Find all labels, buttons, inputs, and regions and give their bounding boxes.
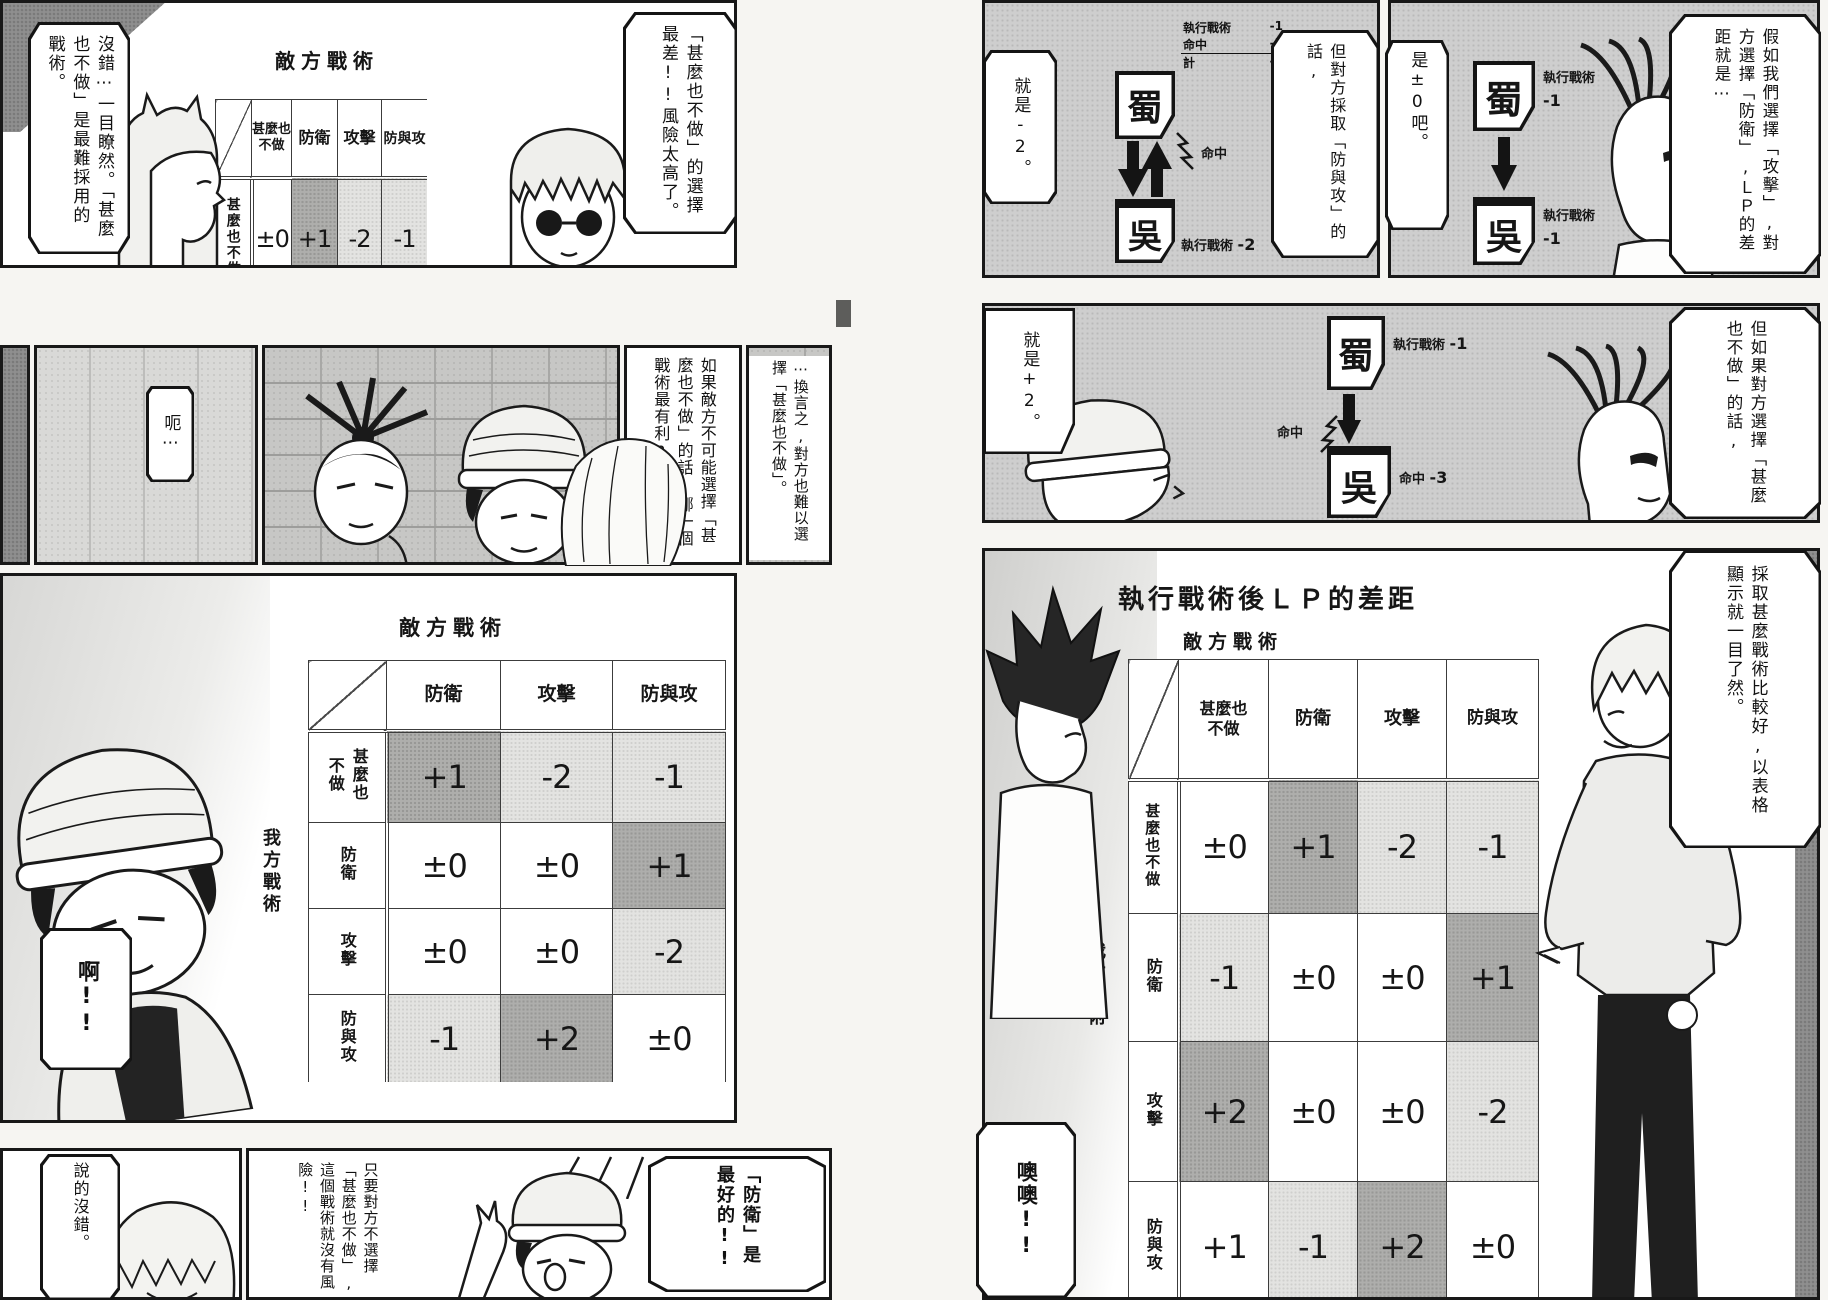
speech-text: 呃⋯ [158, 414, 183, 455]
row-header: 防與攻 [309, 995, 387, 1083]
shu-card: 蜀 [1115, 71, 1175, 139]
page-gutter-mark [836, 300, 851, 327]
character-ponytail-man [271, 376, 453, 565]
table-cell: +1 [1179, 1182, 1269, 1300]
panel-title: 執行戰術後ＬＰ的差距 [1118, 579, 1418, 616]
col-header: 攻擊 [1358, 660, 1447, 780]
speech-text: 就是-2。 [1008, 77, 1033, 178]
col-header: 防與攻 [382, 100, 428, 178]
table-cell: -1 [1269, 1182, 1358, 1300]
shu-card: 蜀 [1327, 316, 1385, 390]
speech-bubble: 假如我們選擇「攻擊」,對方選擇「防衛」,ＬＰ的差距就是⋯ [1669, 14, 1821, 274]
exec-annotation: 執行戰術 -2 [1181, 235, 1255, 254]
table-cell: ±0 [1179, 780, 1269, 914]
speech-text: 「防衛」是最好的!! [711, 1165, 763, 1283]
col-header: 防與攻 [613, 661, 726, 731]
col-header: 防與攻 [1447, 660, 1539, 780]
character-sunglasses-man [501, 119, 635, 268]
row-header: 甚麼也不做 [309, 731, 387, 823]
payoff-table-small: 甚麼也不做 防衛 攻擊 防與攻 甚麼也不做 ±0 +1 -2 -1 [215, 99, 427, 265]
table-cell: ±0 [1358, 914, 1447, 1042]
table-title: 敵方戰術 [1183, 627, 1283, 654]
speech-text: 「甚麼也不做」的選擇最差!!風險太高了。 [655, 25, 704, 221]
exec-annotation: 執行戰術 -1 [1393, 334, 1467, 353]
speech-bubble: 就是-2。 [983, 50, 1057, 204]
col-header: 防衛 [387, 661, 501, 731]
table-cell: -2 [613, 909, 726, 995]
exchange-arrows-icon [1117, 141, 1173, 197]
speech-text: 噢噢!! [1011, 1161, 1041, 1259]
hit-label: 命中 [1277, 422, 1303, 441]
table-cell: +1 [1447, 914, 1539, 1042]
table-cell: -1 [1447, 780, 1539, 914]
speech-bubble: 噢噢!! [976, 1122, 1076, 1298]
speech-bubble: 「甚麼也不做」的選擇最差!!風險太高了。 [623, 12, 737, 234]
panel-4a [0, 1148, 242, 1300]
character-beanie-man-pointing [417, 1165, 657, 1300]
col-header: 攻擊 [501, 661, 613, 731]
table-cell: ±0 [252, 178, 292, 266]
table-cell: -2 [338, 178, 382, 266]
table-cell: +1 [1269, 780, 1358, 914]
speech-bubble: 就是+2。 [983, 308, 1075, 454]
col-header: 甚麼也不做 [1179, 660, 1269, 780]
table-cell: -1 [387, 995, 501, 1083]
speech-bubble: 但如果對方選擇「甚麼也不做」的話, [1669, 307, 1821, 519]
speech-text: 假如我們選擇「攻擊」,對方選擇「防衛」,ＬＰ的差距就是⋯ [1709, 28, 1781, 260]
col-header: 防衛 [1269, 660, 1358, 780]
table-cell: ±0 [501, 909, 613, 995]
payoff-table-right: 甚麼也不做 防衛 攻擊 防與攻 甚麼也不做 ±0 +1 -2 -1 防衛 -1 … [1128, 659, 1539, 1300]
col-header: 攻擊 [338, 100, 382, 178]
speech-text: 就是+2。 [1017, 331, 1042, 432]
col-header: 防衛 [292, 100, 338, 178]
col-header: 甚麼也不做 [252, 100, 292, 178]
character-kid-looking-up [983, 579, 1125, 1019]
character-blonde-girl [548, 424, 700, 566]
speech-text: 但如果對方選擇「甚麼也不做」的話, [1721, 320, 1769, 506]
speech-text: 但對方採取「防與攻」的話, [1302, 43, 1348, 245]
payoff-table-left: 防衛 攻擊 防與攻 甚麼也不做 +1 -2 -1 防衛 ±0 ±0 +1 [308, 660, 726, 1082]
table-cell: +2 [1179, 1042, 1269, 1182]
row-header: 防衛 [309, 823, 387, 909]
table-cell: ±0 [387, 909, 501, 995]
speech-bubble: 「防衛」是最好的!! [648, 1156, 826, 1292]
table-corner [309, 661, 387, 731]
speech-text: 啊!! [70, 960, 102, 1038]
speech-text: ⋯換言之,對方也難以選擇「甚麼也不做」。 [767, 360, 811, 556]
table-title: 敵方戰術 [399, 612, 507, 642]
table-cell: +1 [387, 731, 501, 823]
speech-bubble: 是±0吧。 [1385, 40, 1449, 230]
table-cell: -2 [1447, 1042, 1539, 1182]
panel-2a [0, 345, 30, 565]
speech-bubble: 說的沒錯。 [40, 1154, 120, 1300]
hit-annotation: 命中 -3 [1399, 468, 1447, 487]
speech-text: 採取甚麼戰術比較好,以表格顯示就一目了然。 [1720, 565, 1769, 833]
speech-text: 只要對方不選擇「甚麼也不做」,這個戰術就沒有風險!! [294, 1162, 381, 1296]
table-cell: +2 [1358, 1182, 1447, 1300]
table-corner [1129, 660, 1179, 780]
table-cell: ±0 [501, 823, 613, 909]
hit-label: 命中 [1201, 143, 1227, 162]
table-cell: -1 [1179, 914, 1269, 1042]
wu-card: 吳 [1473, 197, 1535, 265]
row-header: 防與攻 [1129, 1182, 1179, 1300]
speech-bubble: 啊!! [40, 928, 132, 1070]
speech-bubble: 呃⋯ [146, 386, 194, 482]
table-cell: +1 [292, 178, 338, 266]
table-cell: ±0 [1447, 1182, 1539, 1300]
row-header: 攻擊 [309, 909, 387, 995]
table-cell: ±0 [387, 823, 501, 909]
table-cell: -2 [501, 731, 613, 823]
table-cell: ±0 [613, 995, 726, 1083]
table-cell: -1 [382, 178, 428, 266]
speech-bubble: 但對方採取「防與攻」的話, [1271, 30, 1379, 258]
wu-card: 吳 [1327, 446, 1391, 518]
manga-spread: 敵方戰術 甚麼也不做 防衛 攻擊 防與攻 甚麼也不做 ±0 +1 -2 -1 [0, 0, 1828, 1300]
speech-text: 說的沒錯。 [68, 1162, 91, 1292]
speech-bubble: 沒錯⋯一目瞭然。「甚麼也不做」是最難採用的戰術。 [28, 22, 130, 254]
table-cell: +2 [501, 995, 613, 1083]
table-cell: -2 [1358, 780, 1447, 914]
table-cell: ±0 [1358, 1042, 1447, 1182]
table-title: 敵方戰術 [275, 45, 405, 74]
table-cell: ±0 [1269, 914, 1358, 1042]
wu-card: 吳 [1115, 199, 1175, 263]
row-header: 防衛 [1129, 914, 1179, 1042]
impact-squiggle-icon [1311, 414, 1341, 454]
shu-card: 蜀 [1473, 61, 1535, 131]
table-cell: +1 [613, 823, 726, 909]
calc-annotation: 執行戰術-1 命中-3 計-4 [1181, 19, 1285, 71]
speech-text: 是±0吧。 [1405, 51, 1430, 219]
row-header: 攻擊 [1129, 1042, 1179, 1182]
speech-bubble: 採取甚麼戰術比較好,以表格顯示就一目了然。 [1669, 550, 1821, 848]
table-cell: ±0 [1269, 1042, 1358, 1182]
down-arrow-icon [1491, 137, 1517, 191]
row-header: 甚麼也不做 [1129, 780, 1179, 914]
panel-2e: ⋯換言之,對方也難以選擇「甚麼也不做」。 [746, 345, 832, 565]
table-cell: -1 [613, 731, 726, 823]
side-label: 我方戰術 [257, 828, 283, 920]
speech-text: 沒錯⋯一目瞭然。「甚麼也不做」是最難採用的戰術。 [42, 35, 116, 241]
